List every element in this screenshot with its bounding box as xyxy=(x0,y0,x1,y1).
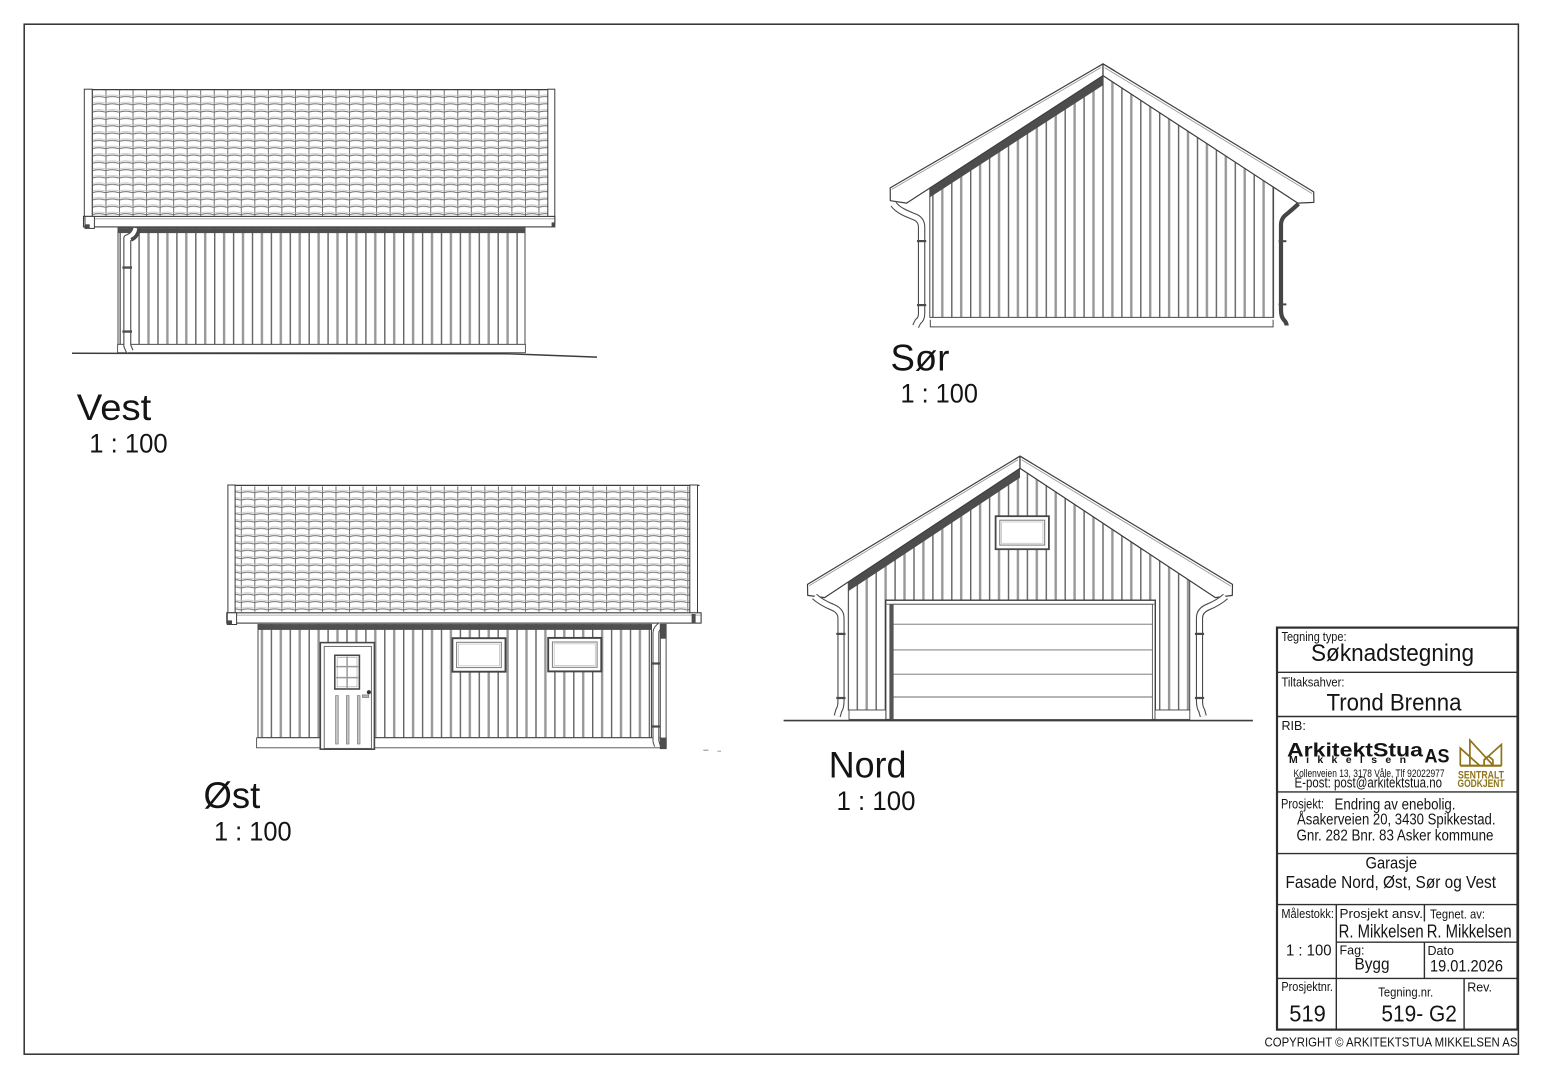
svg-text:Prosjektnr.: Prosjektnr. xyxy=(1281,980,1333,994)
svg-text:1 : 100: 1 : 100 xyxy=(837,786,916,816)
svg-text:E-post: post@arkitektstua.no: E-post: post@arkitektstua.no xyxy=(1295,776,1443,792)
svg-text:Vest: Vest xyxy=(77,386,152,428)
svg-text:Tiltaksahver:: Tiltaksahver: xyxy=(1282,676,1345,690)
svg-text:Tegning.nr.: Tegning.nr. xyxy=(1378,985,1433,1000)
svg-text:Gnr. 282 Bnr. 83 Asker kommune: Gnr. 282 Bnr. 83 Asker kommune xyxy=(1297,827,1494,844)
svg-text:Tegnet. av:: Tegnet. av: xyxy=(1430,907,1485,921)
svg-text:1 : 100: 1 : 100 xyxy=(901,379,978,409)
svg-text:GODKJENT: GODKJENT xyxy=(1458,778,1505,790)
svg-text:Prosjekt:: Prosjekt: xyxy=(1281,796,1324,811)
svg-text:Trond Brenna: Trond Brenna xyxy=(1327,690,1462,717)
svg-text:R. Mikkelsen: R. Mikkelsen xyxy=(1427,920,1512,941)
svg-text:519: 519 xyxy=(1289,1001,1326,1027)
svg-text:Øst: Øst xyxy=(204,774,261,816)
svg-text:Bygg: Bygg xyxy=(1355,955,1390,974)
svg-text:Mikkelsen: Mikkelsen xyxy=(1289,754,1406,766)
svg-text:Sør: Sør xyxy=(891,337,950,379)
svg-text:519- G2: 519- G2 xyxy=(1381,1001,1457,1027)
svg-text:AS: AS xyxy=(1425,747,1450,768)
svg-text:COPYRIGHT © ARKITEKTSTUA MIKKE: COPYRIGHT © ARKITEKTSTUA MIKKELSEN AS xyxy=(1265,1035,1518,1050)
svg-text:1 : 100: 1 : 100 xyxy=(1286,943,1332,960)
svg-text:Åsakerveien 20, 3430 Spikkesta: Åsakerveien 20, 3430 Spikkestad. xyxy=(1297,812,1496,829)
svg-text:Målestokk:: Målestokk: xyxy=(1281,907,1334,921)
svg-text:Søknadstegning: Søknadstegning xyxy=(1311,640,1474,667)
svg-text:1 : 100: 1 : 100 xyxy=(89,429,167,459)
svg-text:Dato: Dato xyxy=(1428,944,1454,958)
svg-text:19.01.2026: 19.01.2026 xyxy=(1430,958,1503,976)
svg-text:Nord: Nord xyxy=(829,743,907,785)
svg-text:Rev.: Rev. xyxy=(1467,981,1492,995)
svg-text:Fasade Nord, Øst, Sør og Vest: Fasade Nord, Øst, Sør og Vest xyxy=(1286,872,1497,892)
svg-text:Garasje: Garasje xyxy=(1366,855,1418,873)
svg-text:Prosjekt ansv.: Prosjekt ansv. xyxy=(1340,907,1424,921)
svg-text:RIB:: RIB: xyxy=(1282,719,1306,733)
svg-text:1 : 100: 1 : 100 xyxy=(214,817,292,847)
svg-text:R. Mikkelsen: R. Mikkelsen xyxy=(1339,920,1424,941)
